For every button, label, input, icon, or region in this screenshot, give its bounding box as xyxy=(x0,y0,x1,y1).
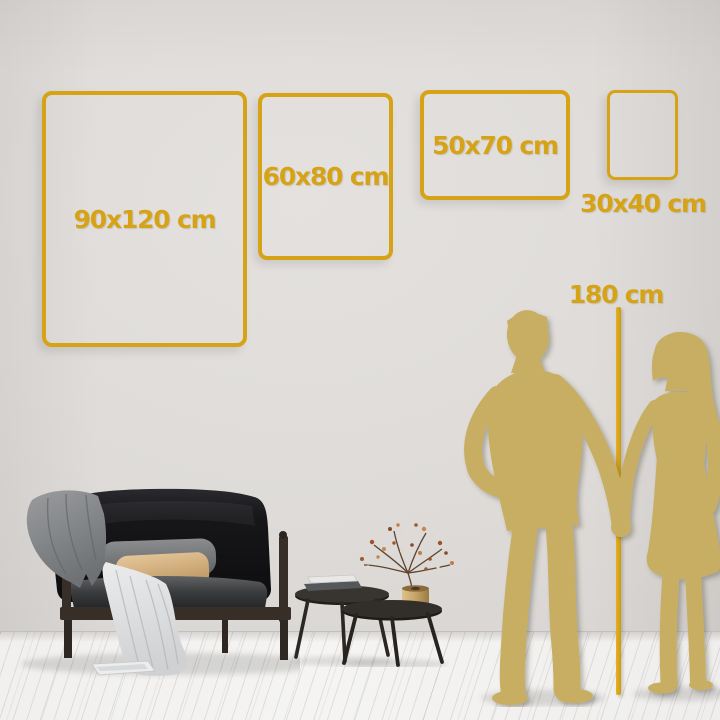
frame-90x120: 90x120 cm xyxy=(42,91,247,347)
man-back-leg xyxy=(512,529,525,689)
frame-50x70-label: 50x70 cm xyxy=(432,131,558,160)
woman-front-foot xyxy=(648,683,676,694)
woman-front-arm xyxy=(623,407,655,519)
frame-30x40 xyxy=(607,90,678,180)
frame-90x120-label: 90x120 cm xyxy=(74,205,216,234)
branch-blossoms xyxy=(360,523,454,571)
small-coffee-table xyxy=(295,586,389,662)
coffee-tables xyxy=(288,515,460,667)
frame-60x80-label: 60x80 cm xyxy=(263,162,389,191)
couple-silhouette xyxy=(455,305,720,707)
man-front-leg xyxy=(559,525,567,689)
woman-back-leg xyxy=(693,573,698,681)
sofa-illustration xyxy=(8,486,300,682)
woman-silhouette xyxy=(615,332,720,694)
man-back-foot xyxy=(492,691,528,705)
frame-60x80: 60x80 cm xyxy=(258,93,393,260)
woman-hand xyxy=(615,517,631,533)
man-silhouette xyxy=(473,308,631,705)
woman-front-leg xyxy=(668,573,671,683)
wall-art-size-guide-scene: 90x120 cm 60x80 cm 50x70 cm 30x40 cm 180… xyxy=(0,0,720,720)
frame-30x40-label: 30x40 cm xyxy=(577,189,709,218)
large-coffee-table xyxy=(342,600,442,665)
frame-50x70: 50x70 cm xyxy=(420,90,570,200)
man-front-foot xyxy=(557,689,593,703)
woman-back-foot xyxy=(689,680,713,690)
